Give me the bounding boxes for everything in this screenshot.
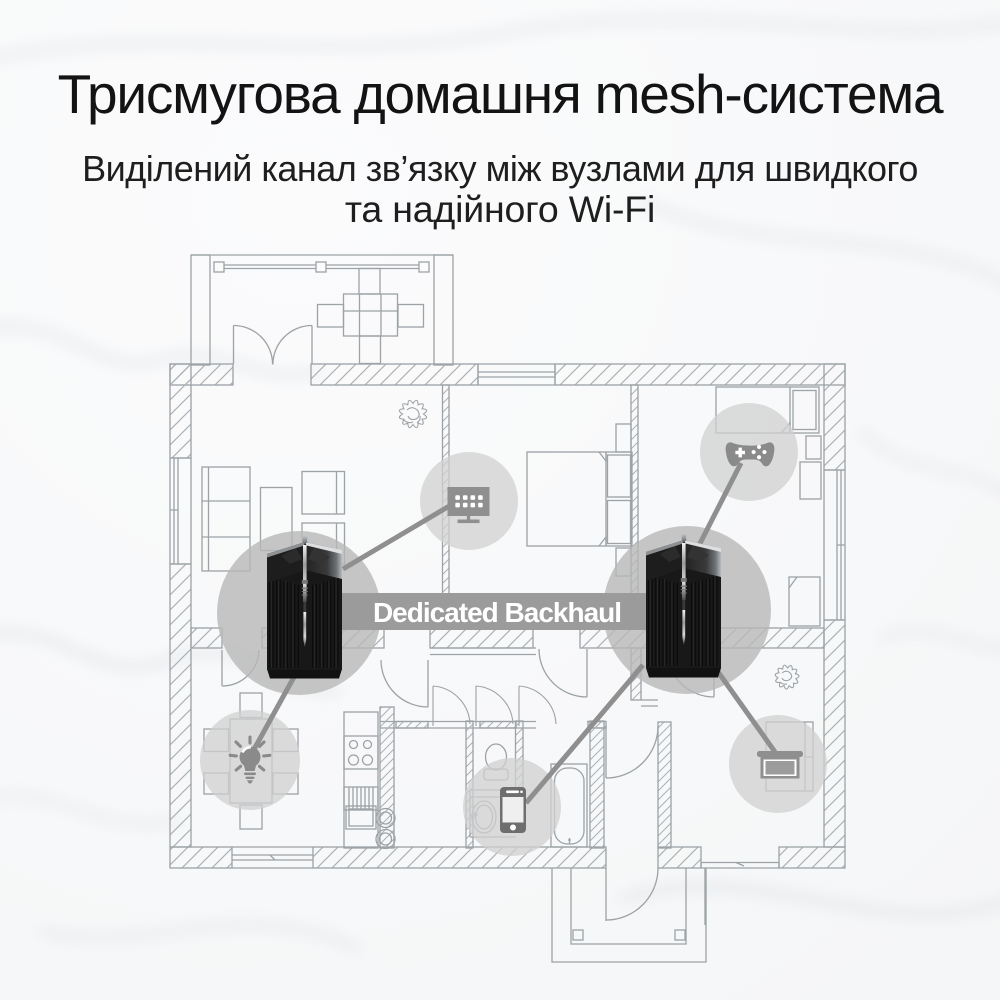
svg-text:Dedicated Backhaul: Dedicated Backhaul (373, 597, 621, 628)
svg-text:Виділений канал зв’язку між ву: Виділений канал зв’язку між вузлами для … (82, 148, 918, 189)
svg-text:та надійного Wi-Fi: та надійного Wi-Fi (345, 188, 655, 230)
svg-text:Трисмугова домашня mesh-систем: Трисмугова домашня mesh-система (58, 63, 944, 125)
